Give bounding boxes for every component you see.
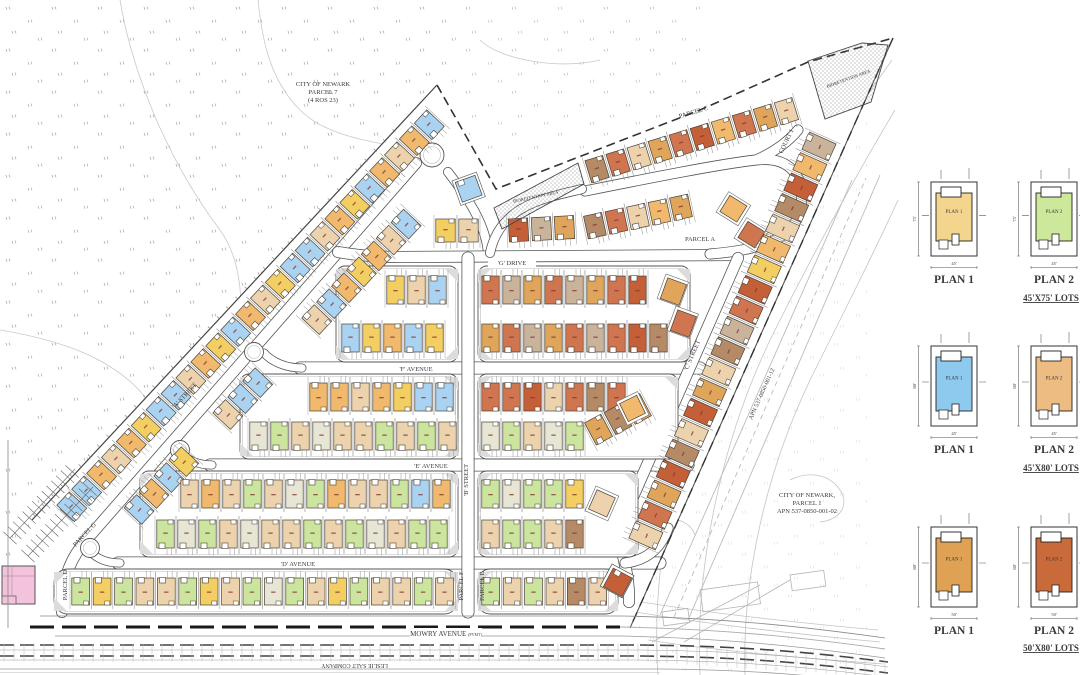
svg-text:80': 80' — [1012, 564, 1017, 570]
svg-text:45'X80' LOTS: 45'X80' LOTS — [1023, 463, 1079, 473]
svg-text:80': 80' — [1012, 383, 1017, 389]
svg-text:PLAN 2: PLAN 2 — [1034, 444, 1074, 456]
svg-text:PARCEL A: PARCEL A — [685, 236, 715, 243]
svg-text:PARCEL 1: PARCEL 1 — [793, 500, 822, 507]
svg-text:CITY OF NEWARK,: CITY OF NEWARK, — [779, 492, 835, 499]
svg-text:'D' AVENUE: 'D' AVENUE — [281, 561, 315, 568]
svg-text:80': 80' — [912, 564, 917, 570]
svg-text:45': 45' — [951, 261, 957, 266]
svg-text:PLAN 1: PLAN 1 — [946, 558, 963, 563]
svg-text:PLAN 2: PLAN 2 — [1046, 377, 1063, 382]
svg-text:PARCEL F: PARCEL F — [458, 571, 465, 601]
svg-text:PLAN 2: PLAN 2 — [1046, 558, 1063, 563]
svg-text:MOWRY AVENUE (PVMT): MOWRY AVENUE (PVMT) — [410, 630, 482, 638]
svg-text:45': 45' — [951, 431, 957, 436]
svg-text:80': 80' — [912, 383, 917, 389]
svg-text:PLAN 1: PLAN 1 — [946, 377, 963, 382]
svg-text:PLAN 1: PLAN 1 — [934, 625, 974, 637]
svg-text:PLAN 2: PLAN 2 — [1034, 274, 1074, 286]
svg-text:PLAN 2: PLAN 2 — [1034, 625, 1074, 637]
svg-text:45': 45' — [1051, 431, 1057, 436]
svg-text:PLAN 1: PLAN 1 — [934, 274, 974, 286]
svg-text:'E' AVENUE: 'E' AVENUE — [414, 463, 447, 470]
svg-text:PARCEL 7: PARCEL 7 — [309, 89, 339, 96]
svg-text:PARCEL B: PARCEL B — [479, 570, 486, 601]
svg-text:LESLIE SALT COMPANY: LESLIE SALT COMPANY — [321, 662, 388, 668]
svg-text:PLAN 2: PLAN 2 — [1046, 210, 1063, 215]
svg-text:50'X80' LOTS: 50'X80' LOTS — [1023, 643, 1079, 653]
svg-text:(4 ROS 23): (4 ROS 23) — [308, 97, 338, 104]
svg-text:50': 50' — [1051, 612, 1057, 617]
svg-text:APN 537-0850-001-02: APN 537-0850-001-02 — [777, 508, 837, 515]
svg-text:50': 50' — [951, 612, 957, 617]
svg-text:'B' STREET: 'B' STREET — [463, 464, 470, 496]
svg-text:75': 75' — [1012, 216, 1017, 222]
svg-text:45': 45' — [1051, 261, 1057, 266]
svg-text:PLAN 1: PLAN 1 — [934, 444, 974, 456]
svg-text:'F' AVENUE: 'F' AVENUE — [399, 366, 432, 373]
svg-text:PARCEL D: PARCEL D — [62, 569, 69, 600]
svg-text:75': 75' — [912, 216, 917, 222]
svg-text:45'X75' LOTS: 45'X75' LOTS — [1023, 293, 1079, 303]
svg-text:PLAN 1: PLAN 1 — [946, 210, 963, 215]
svg-text:'G' DRIVE: 'G' DRIVE — [498, 260, 527, 267]
svg-text:CITY OF NEWARK: CITY OF NEWARK — [296, 81, 351, 88]
